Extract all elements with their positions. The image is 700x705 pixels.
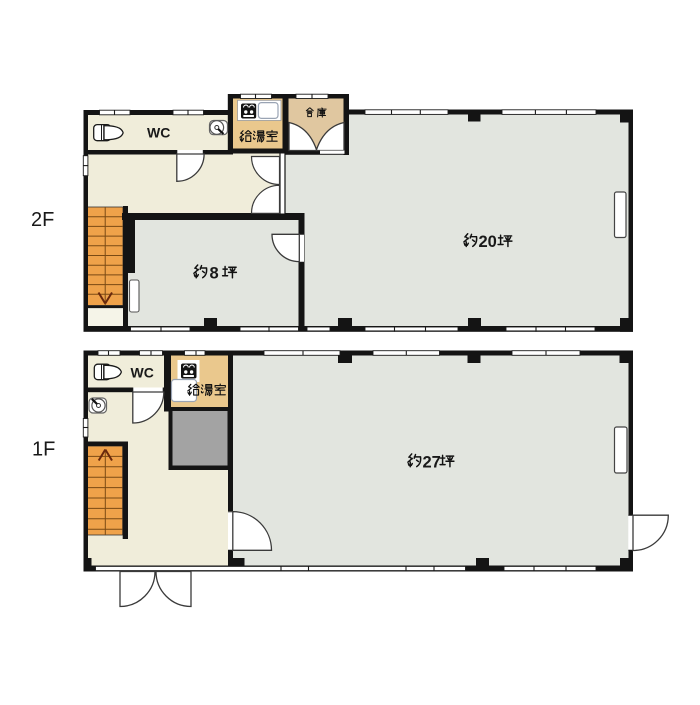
svg-text:8: 8 (210, 265, 219, 283)
svg-text:WC: WC (147, 124, 170, 140)
svg-text:27: 27 (423, 453, 441, 471)
svg-text:2F: 2F (31, 209, 54, 231)
svg-text:1F: 1F (32, 438, 55, 460)
svg-text:WC: WC (131, 365, 154, 381)
svg-text:20: 20 (479, 233, 497, 251)
